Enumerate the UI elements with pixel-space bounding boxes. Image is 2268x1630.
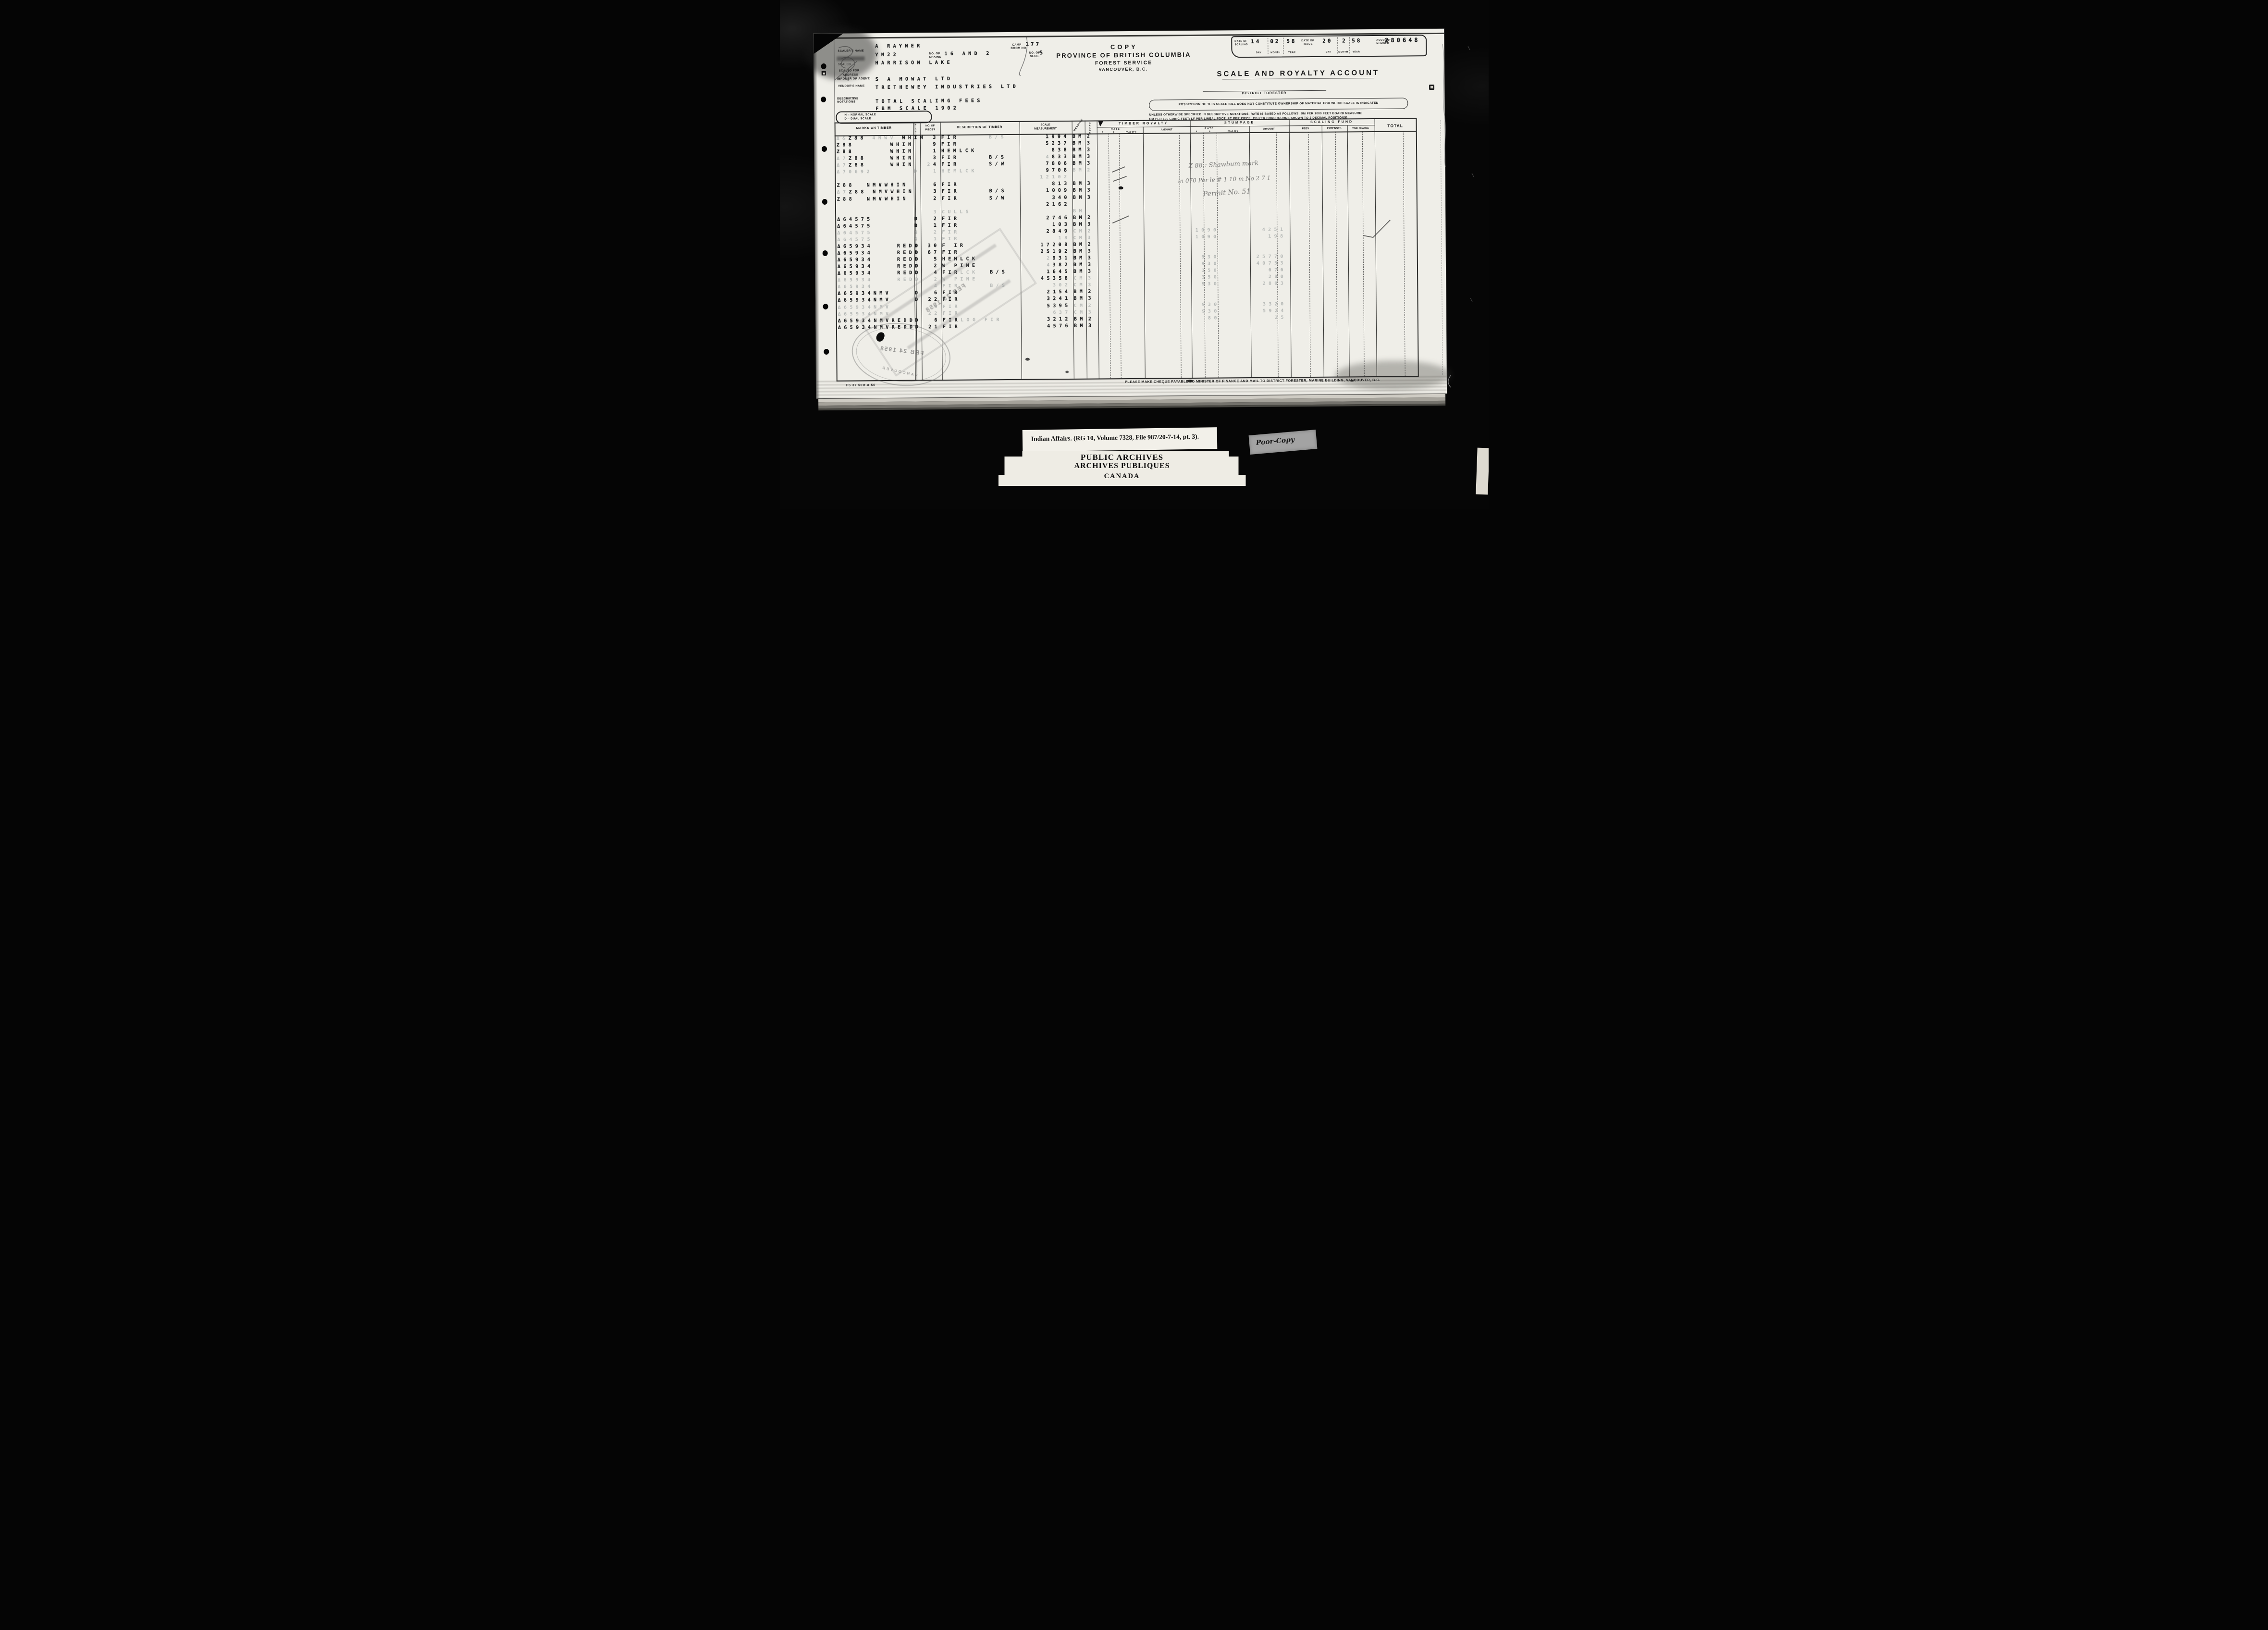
cell-gr: 2 [1087,215,1097,220]
cell-sa: 2803 [1246,281,1286,287]
cell-s: 2931 [1019,256,1070,261]
cell-m: Z88 WHIN [836,142,918,148]
cell-sr: 350 [1190,268,1219,273]
cell-me: CM [1073,303,1088,308]
cell-me: CM [1073,235,1087,241]
cell-s: 637 [1020,309,1071,315]
cell-d: FIR [941,196,996,201]
cell-sa: 40753 [1245,261,1286,267]
cell-m: Δ65934 REDD [838,271,919,276]
cell-d: FIR [942,216,997,222]
cell-p: 3 [916,135,938,140]
cell-me: BM [1073,222,1087,227]
cell-d: FIR [941,189,996,195]
cell-m: Δ65934 [838,284,919,290]
cell-s: 340 [1019,195,1070,200]
cell-m: Δ&Z88 4NWV WHIN [836,135,918,141]
cell-s: 5237 [1018,141,1069,147]
cell-me: BM [1072,134,1086,139]
cell-m: Δ7Z88 NMVWHIN [837,189,918,195]
cell-me: BM [1072,195,1087,200]
cell-gr: 3 [1087,161,1097,166]
cell-p: 1 [917,223,939,228]
cell-m: Δ7Z88 WHIN [837,162,918,168]
cell-s: 2154 [1020,289,1071,295]
cell-gr: 3 [1088,296,1097,301]
cell-me: BM [1073,256,1087,261]
cell-gr: 2 [1088,316,1097,321]
cell-gr: 2 [1087,228,1097,234]
cell-m: Δ65934 REDD [837,243,919,249]
cell-d: FIR [941,155,996,161]
cell-p: 2 [917,230,939,235]
pa-line-1: PUBLIC ARCHIVES [998,453,1246,462]
cell-gr: 3 [1087,262,1097,268]
cell-me: BM [1073,215,1087,220]
cell-d: FIR [941,161,996,167]
cell-d: FIR [942,229,997,235]
cell-d: FIR [941,182,996,188]
cell-s: 1994 [1018,134,1069,140]
cell-gr: 3 [1087,256,1097,261]
cell-m: Δ70692 [837,169,918,175]
cell-m: Δ65934 REDD [837,250,919,256]
cell-s: 103 [1019,222,1070,228]
cell-d: FIR [941,141,996,147]
cell-sa: 4251 [1245,227,1286,233]
cell-s: 25192 [1019,249,1070,255]
cell-n: B/S [989,188,1014,194]
cell-s: 4576 [1020,323,1071,329]
cell-p: 3 [917,155,939,161]
cell-gr: 3 [1087,249,1097,254]
cell-n: S/W [989,195,1014,200]
cell-m: Z88 WHIN [837,149,918,155]
cell-p: 2 [917,196,939,201]
cell-n: S/W [989,161,1014,167]
cell-d: FIR [942,222,997,228]
cell-sa: 25 [1246,315,1286,321]
cell-s: 18 [1019,235,1070,241]
cell-p: 1 [917,236,939,242]
cell-gr: 3 [1087,181,1097,186]
cell-m: Δ65934 REDD [838,277,919,283]
cell-gr: 3 [1087,222,1097,227]
cell-m: Δ64575 [837,236,919,242]
cell-gr: 3 [1087,269,1097,274]
poor-copy-slip: Poor-Copy [1248,430,1317,455]
cell-p: 3 [917,210,939,215]
cell-sr: 930 [1190,261,1219,267]
cell-gr: 3 [1088,309,1097,315]
cell-s: 838 [1019,148,1070,153]
cell-s: 4382 [1019,262,1070,268]
cell-gr: 3 [1088,323,1097,328]
cell-me: BM [1073,242,1087,247]
cell-sr: 930 [1190,255,1219,260]
cell-me: BM [1073,262,1087,268]
cell-gr: 2 [1088,289,1097,295]
cell-gr: 3 [1088,283,1097,288]
cell-me: BM [1073,208,1087,213]
cell-m: Δ64575 [837,230,919,235]
cell-me: BM [1073,316,1088,321]
poor-copy-text: Poor-Copy [1256,436,1295,447]
cell-gr: 3 [1087,154,1097,160]
cell-gr: 2 [1086,134,1096,139]
cell-me: BM [1072,148,1087,153]
cell-me: BM [1073,289,1088,295]
cell-sa: 676 [1245,268,1286,273]
cell-s: 12102 [1019,174,1070,180]
cell-me: CM [1073,276,1088,281]
cell-gr: 3 [1087,148,1097,153]
cell-gr: 2 [1087,168,1097,173]
cell-p: 24 [917,162,939,167]
cell-sr: 930 [1190,282,1220,287]
cell-d: HEMLCK [941,148,996,154]
cell-me: BM [1073,323,1088,328]
cell-m: Δ64575 [837,216,919,222]
cell-s: 5395 [1020,303,1071,309]
cell-s: 2162 [1019,202,1070,208]
cell-s: 2849 [1019,229,1070,235]
cell-sr: 350 [1190,275,1220,280]
cell-s: 7806 [1019,161,1070,167]
cell-s: 1009 [1019,188,1070,194]
cell-p: 5 [917,257,939,262]
cell-me: BM [1072,141,1086,146]
cell-d: HEMLCK [941,168,996,174]
citation-text: Indian Affairs. (RG 10, Volume 7328, Fil… [1031,433,1198,443]
cell-p: 30 [917,243,939,248]
sheet-sliver [1476,448,1489,495]
cell-p: 1 [917,148,939,154]
cell-m: Z88 NMVWHIN [837,196,918,202]
form-number: FS 37 50M-8-56 [846,383,875,387]
cell-m: Z88 NMVWHIN [837,183,918,188]
cell-p: 67 [917,250,939,255]
cell-p: 1 [917,169,939,174]
cell-sa: 25770 [1245,254,1286,259]
cell-p: 9 [916,142,938,147]
cell-s: 2746 [1019,215,1070,221]
cell-gr: 2 [1087,242,1097,247]
cell-d: CULLS [942,209,997,215]
cell-s: 813 [1019,181,1070,187]
cell-me: BM [1072,188,1087,193]
cell-me: CM [1073,283,1088,288]
cell-gr: 3 [1087,235,1097,240]
cell-p: 2 [917,216,939,222]
cell-sr: 1090 [1190,234,1219,239]
cell-me: BM [1073,269,1087,274]
pa-line-3: CANADA [998,472,1246,481]
cell-p: 2 [917,263,939,269]
cell-gr: 3 [1086,141,1096,146]
cell-me: BM [1072,181,1087,186]
pa-line-2: ARCHIVES PUBLIQUES [998,462,1246,470]
cell-me: CM [1073,228,1087,234]
cell-s: 9708 [1019,168,1070,173]
cell-sr: 1090 [1190,227,1219,233]
cell-m: Δ7Z88 WHIN [837,156,918,161]
cell-me: BM [1072,168,1087,173]
cell-d: FIR [941,135,996,140]
cell-sa: 198 [1245,234,1286,239]
cell-me: BM [1073,249,1087,254]
scale-royalty-form-page: SCALER'S NAME SCALED SCALED FOR ADDRESS … [814,29,1447,398]
cell-gr: 3 [1087,188,1097,193]
cell-s: 3241 [1020,296,1071,302]
cell-s: 4833 [1019,154,1070,160]
cell-sr: 930 [1190,309,1220,314]
paper-stack: SCALER'S NAME SCALED SCALED FOR ADDRESS … [814,29,1447,418]
cell-gr: 3 [1087,195,1097,200]
public-archives-label: PUBLIC ARCHIVES ARCHIVES PUBLIQUES CANAD… [998,451,1246,486]
cell-sr: 930 [1190,302,1220,307]
cell-sa: 280 [1246,274,1286,280]
cell-me: BM [1072,154,1087,160]
citation-label: Indian Affairs. (RG 10, Volume 7328, Fil… [1022,427,1217,452]
cell-gr: 2 [1088,303,1097,308]
cell-me: BM [1072,161,1087,166]
cell-s: 3212 [1020,317,1071,322]
cell-s: 17208 [1019,242,1070,248]
cell-me: CM [1073,309,1088,315]
cell-sr: 80 [1190,315,1220,321]
cell-sa: 5924 [1246,308,1286,314]
cell-m: Δ65934 REDD [837,264,919,270]
cell-sa: 3320 [1246,301,1286,307]
cell-m: Δ64575 [837,223,919,229]
photographed-document-on-black: SCALER'S NAME SCALED SCALED FOR ADDRESS … [780,0,1489,509]
cell-gr: 3 [1088,276,1097,281]
cell-n: B/S [989,155,1014,160]
cell-n: B/S [988,135,1013,140]
cell-p: 6 [917,182,939,187]
cell-p: 3 [917,189,939,195]
cell-m: Δ65934 REDD [837,257,919,262]
cell-me: BM [1073,296,1088,301]
